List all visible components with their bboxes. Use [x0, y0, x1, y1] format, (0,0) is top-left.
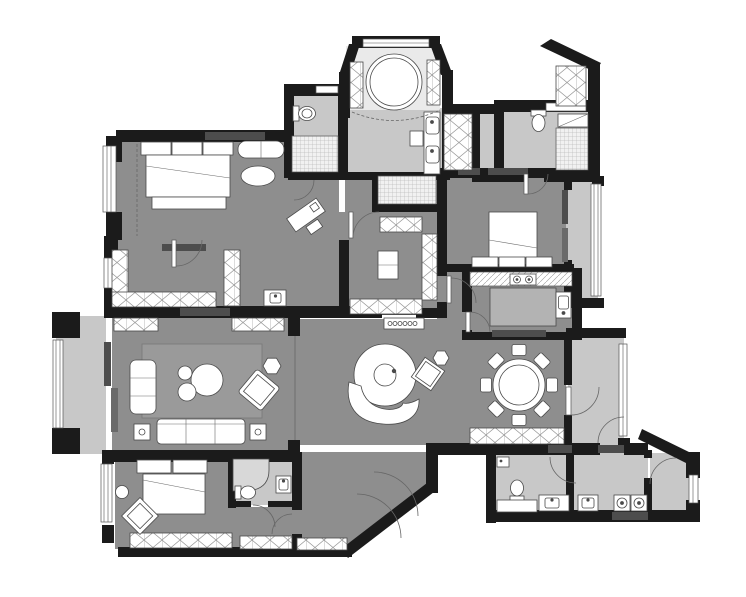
- window-east-corridor: [619, 344, 627, 436]
- window-bedroom1-left: [103, 146, 116, 212]
- living-cabinet-left: [114, 318, 158, 331]
- corridor1-wardrobe-a: [112, 250, 128, 294]
- master-shower-tile: [292, 136, 338, 172]
- corridor1-wardrobe-b: [224, 250, 240, 306]
- double-bed-master: [141, 142, 233, 209]
- dining-chair: [512, 345, 526, 356]
- window-bedroom3-left: [101, 464, 112, 522]
- dining-chair: [547, 378, 558, 392]
- living-cabinet-right: [232, 318, 284, 331]
- kitchen-door-header: [492, 330, 546, 337]
- corridor1-wardrobe-row: [112, 292, 216, 307]
- dining-sideboard: [470, 428, 564, 444]
- bedroom2-header-b: [488, 168, 528, 175]
- east-corridor-floor: [568, 330, 624, 445]
- bath4-sink: [539, 495, 569, 511]
- closet-wardrobe-top: [380, 217, 422, 232]
- hall3-cabinet: [240, 536, 292, 549]
- balcony2-slider-a: [562, 190, 568, 224]
- toilet-master: [293, 106, 316, 121]
- closet-island: [378, 251, 398, 279]
- laundry-sink: [578, 495, 598, 511]
- ensuite-sink: [276, 476, 291, 493]
- coffee-table-small2: [178, 383, 196, 401]
- laundry-bottom-accent: [612, 512, 648, 520]
- oval-rug: [241, 166, 275, 186]
- entry-shoe-cabinet: [297, 538, 347, 550]
- coffee-table-small: [178, 366, 192, 380]
- round-bathtub: [366, 54, 422, 110]
- round-dining-table: [493, 359, 545, 411]
- window-west-balcony: [53, 340, 63, 428]
- side-table-hexagon-living: [263, 358, 281, 374]
- door-leaf: [466, 312, 470, 332]
- bedroom3-wardrobe: [130, 533, 232, 548]
- round-side-table3: [116, 486, 129, 499]
- balcony2-slider-b: [562, 228, 568, 262]
- toilet-service: [510, 480, 524, 502]
- guest-shower-bench: [558, 114, 588, 127]
- chaise: [130, 360, 156, 414]
- side-table-left: [134, 424, 150, 440]
- topright-cabinet: [556, 66, 586, 106]
- bath4-counter: [497, 500, 537, 512]
- door-leaf: [447, 276, 451, 303]
- bedroom1-window-header: [205, 132, 265, 140]
- corridor1-header: [162, 244, 206, 251]
- dining-chair: [512, 415, 526, 426]
- sofa: [157, 419, 245, 444]
- toilet-guest: [531, 110, 546, 132]
- shoe-cabinet: [384, 318, 424, 329]
- bath4-shelf: [497, 457, 509, 467]
- cooktop: [510, 274, 536, 285]
- closet-wardrobe-right: [422, 234, 437, 300]
- bay-cabinet-left: [350, 62, 363, 108]
- window-service-balcony: [689, 475, 698, 503]
- dining-chair: [481, 378, 492, 392]
- guest-shower-tile: [556, 128, 588, 170]
- bath4-door-header: [548, 445, 572, 453]
- window-bay-top: [363, 39, 429, 47]
- side-table-hexagon: [433, 351, 449, 365]
- dryer: [631, 495, 647, 511]
- living-slider-a: [104, 342, 111, 386]
- corridor-vanity: [264, 290, 286, 306]
- kitchen-sink: [556, 292, 571, 318]
- vanity-tall-cabinet: [444, 114, 472, 170]
- door-leaf: [349, 212, 353, 238]
- closet-wardrobe-bottom: [350, 299, 422, 314]
- door-leaf: [524, 174, 528, 194]
- floor-plan-canvas: apartment floor plan: [0, 0, 746, 597]
- laundry-door-header: [598, 445, 624, 453]
- floor-plan-drawing: apartment floor plan: [0, 0, 746, 597]
- toilet-ensuite: [235, 486, 256, 499]
- washer: [614, 495, 630, 511]
- window-toilet1-top: [316, 86, 338, 93]
- living-slider-b: [111, 388, 118, 432]
- side-table-right: [250, 424, 266, 440]
- tv-panel: [180, 308, 230, 316]
- door-leaf: [172, 240, 176, 267]
- bay-cabinet-right: [427, 60, 440, 105]
- window-bedroom-balcony: [591, 184, 601, 296]
- kitchen-island: [490, 288, 556, 326]
- closet-shower-tile: [378, 176, 436, 204]
- door-leaf: [566, 387, 571, 415]
